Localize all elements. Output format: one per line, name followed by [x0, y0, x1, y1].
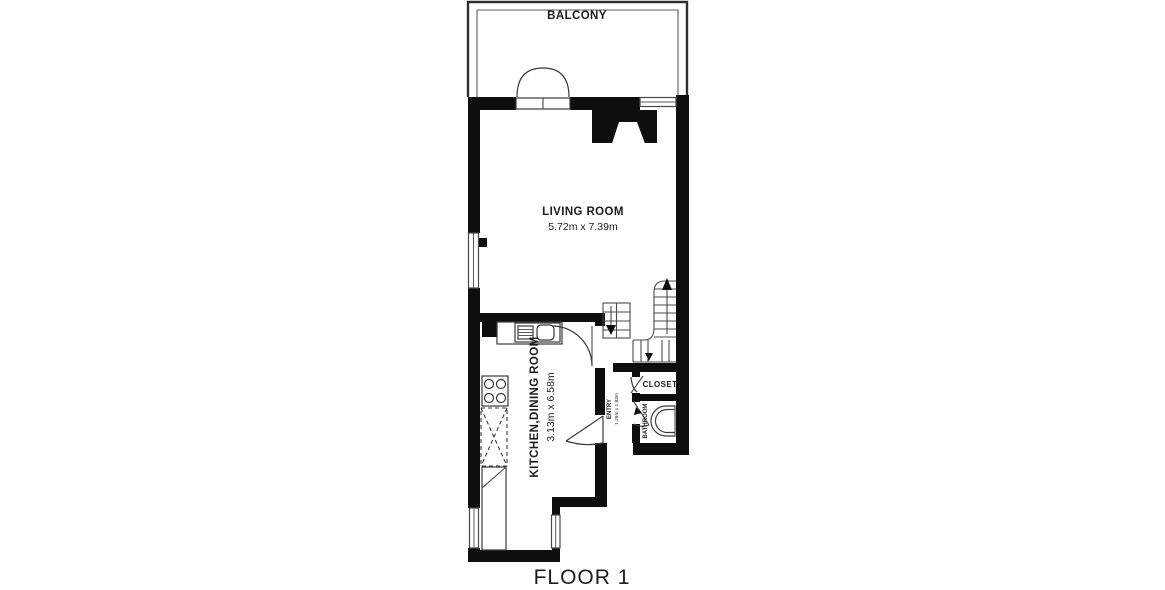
window-living-left [469, 233, 479, 288]
wall-pier-window [479, 238, 487, 247]
wall-kitchen-top [480, 313, 605, 322]
bathtub [651, 406, 675, 436]
living-room-dims: 5.72m x 7.39m [548, 221, 618, 233]
balcony-railing-inner [477, 10, 678, 97]
wall-closet-left-a [632, 372, 640, 377]
wall-left-upper [468, 97, 480, 233]
stairs-upper-flight [654, 289, 676, 337]
bathroom-label: BATHROOM [643, 404, 649, 439]
wall-top-mid [570, 97, 640, 110]
floor-title: FLOOR 1 [534, 566, 631, 589]
window-step-right [552, 515, 561, 548]
kitchen-door [552, 326, 592, 366]
wall-left-mid [468, 288, 480, 508]
floor-plan-canvas: BALCONY [0, 0, 1165, 590]
entry-hall: ENTRY 1.29m x 1.83m [566, 393, 620, 444]
wall-bottom [468, 550, 560, 562]
entry-label: ENTRY [607, 399, 613, 419]
door-swing-right-arc [543, 68, 569, 97]
wall-step-horizontal [552, 497, 607, 507]
window-kitchen-left [470, 508, 479, 548]
fireplace [592, 110, 657, 144]
stairs-start-marker-icon [645, 353, 653, 361]
stairs-down-flight [603, 303, 630, 338]
bathroom: BATHROOM [634, 402, 675, 438]
kitchen-future-appliance [481, 408, 507, 466]
kitchen-dims: 3.13m x 6.58m [545, 372, 557, 442]
kitchen-dining-room: KITCHEN,DINING ROOM 3.13m x 6.58m [481, 322, 592, 550]
kitchen-counter-left [482, 467, 506, 550]
closet: CLOSET [631, 376, 677, 393]
entrance-door [566, 416, 603, 445]
wall-step-vertical [595, 443, 607, 503]
kitchen-label: KITCHEN,DINING ROOM [529, 336, 541, 477]
stairs-lower-flight [633, 340, 676, 362]
windows [469, 98, 677, 549]
wall-bath-left [632, 424, 640, 443]
entry-dims: 1.29m x 1.83m [614, 393, 620, 425]
balcony-french-doors [516, 68, 570, 109]
floor-plan-drawing: BALCONY [0, 0, 1165, 590]
window-top-right [640, 98, 676, 107]
balcony-label: BALCONY [547, 10, 607, 22]
wall-bottom-right [633, 443, 688, 455]
staircase [603, 278, 676, 362]
wall-entry-top [613, 363, 688, 372]
closet-door [631, 376, 643, 393]
stairs-up-arrow-icon [662, 278, 672, 290]
wall-closet-bath-divider [640, 394, 688, 401]
living-room: LIVING ROOM 5.72m x 7.39m [542, 206, 624, 233]
wall-closet-left-b [632, 393, 640, 402]
balcony: BALCONY [468, 2, 687, 97]
living-room-label: LIVING ROOM [542, 206, 624, 218]
kitchen-stove [482, 376, 508, 406]
wall-hall-seg2 [595, 368, 605, 415]
door-swing-left-arc [517, 68, 543, 97]
closet-label: CLOSET [643, 380, 678, 389]
wall-pier-kitchen [482, 322, 497, 337]
